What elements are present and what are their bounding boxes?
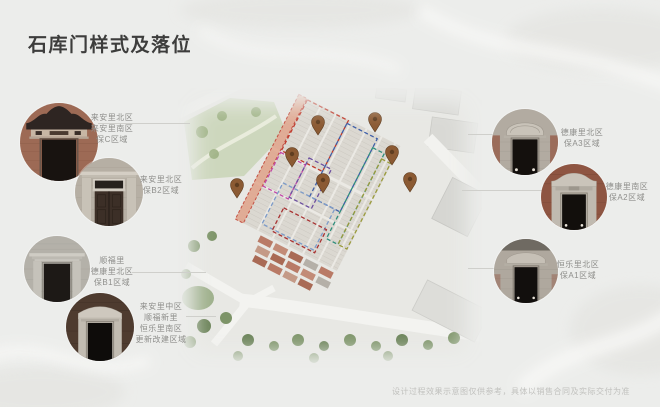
gate-label-line: 保B1区域 — [86, 277, 138, 288]
gate-label-laoanli-bc: 来安里北区 来安里南区 保C区域 — [84, 112, 140, 145]
gate-label-dekangli-a2: 德康里南区 保A2区域 — [601, 181, 653, 203]
gate-label-line: 来安里北区 — [84, 112, 140, 123]
gate-photo-dekangli-north — [492, 109, 558, 175]
gate-label-henleli-a1: 恒乐里北区 保A1区域 — [553, 259, 603, 281]
gate-label-line: 德康里南区 — [601, 181, 653, 192]
gate-label-line: 保A1区域 — [553, 270, 603, 281]
gate-label-line: 来安里中区 — [130, 301, 192, 312]
gate-label-line: 顺福里 — [86, 255, 138, 266]
gate-label-dekangli-a3: 德康里北区 保A3区域 — [552, 127, 612, 149]
gate-label-line: 德康里北区 — [552, 127, 612, 138]
gate-label-shunfuli-b1: 顺福里 德康里北区 保B1区域 — [86, 255, 138, 288]
gate-label-laoanli-b2: 来安里北区 保B2区域 — [136, 174, 186, 196]
gate-label-line: 顺福新里 — [130, 312, 192, 323]
gate-photo-dekangli-south — [541, 164, 607, 230]
gate-label-line: 保A3区域 — [552, 138, 612, 149]
gate-label-line: 保A2区域 — [601, 192, 653, 203]
gate-label-renewal: 来安里中区 顺福新里 恒乐里南区 更新改建区域 — [130, 301, 192, 345]
page-title: 石库门样式及落位 — [28, 30, 192, 57]
site-plan-map-image — [178, 88, 482, 368]
presentation-slide: 石库门样式及落位 — [0, 0, 660, 407]
gate-label-line: 来安里南区 — [84, 123, 140, 134]
gate-label-line: 保C区域 — [84, 134, 140, 145]
gate-photo-henleli-north — [494, 239, 558, 303]
gate-label-line: 来安里北区 — [136, 174, 186, 185]
gate-label-line: 恒乐里南区 — [130, 323, 192, 334]
gate-label-line: 保B2区域 — [136, 185, 186, 196]
gate-label-line: 恒乐里北区 — [553, 259, 603, 270]
gate-photo-shunfuli — [24, 236, 90, 302]
site-plan-map — [178, 88, 482, 368]
gate-label-line: 德康里北区 — [86, 266, 138, 277]
leader-line — [132, 272, 206, 273]
gate-label-line: 更新改建区域 — [130, 334, 192, 345]
gate-photo-laoanli-b2 — [75, 158, 143, 226]
disclaimer-caption: 设计过程效果示意图仅供参考，具体以销售合同及实际交付为准 — [392, 386, 630, 397]
gate-photo-laoanli-central — [66, 293, 134, 361]
